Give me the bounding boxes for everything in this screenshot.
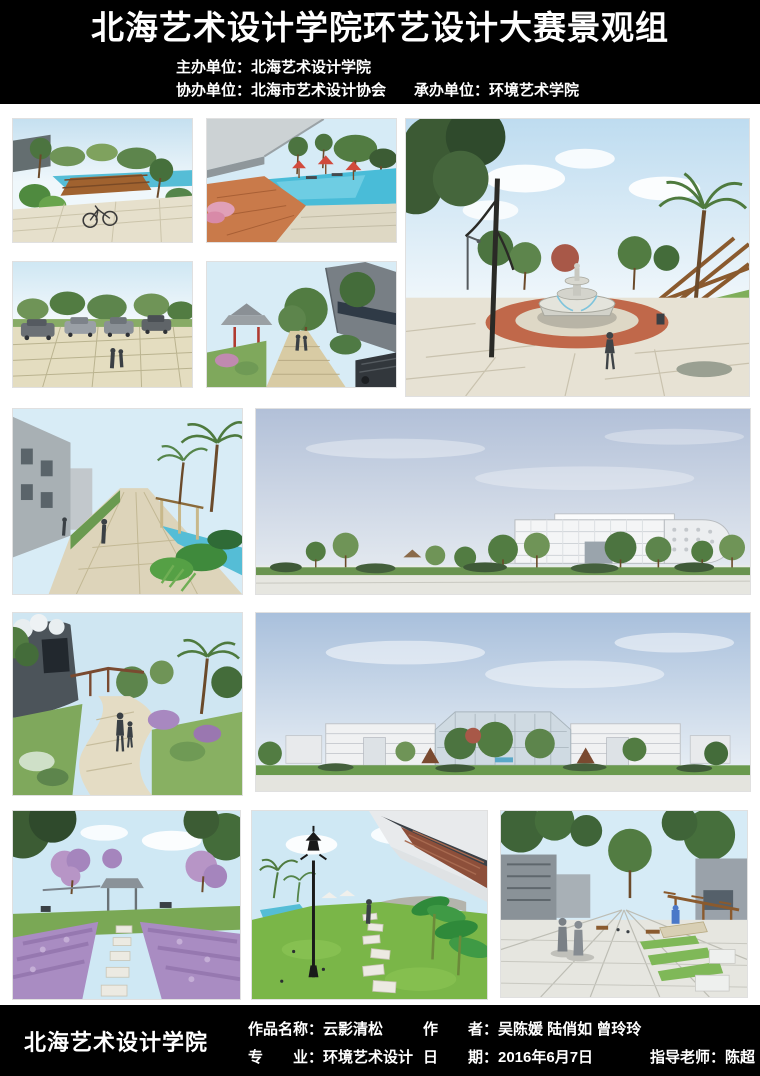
co-organizer-unit: 协办单位：北海市艺术设计协会 [176, 82, 386, 99]
school-name: 北海艺术设计学院 [24, 1025, 208, 1057]
building-elevation-art [256, 409, 750, 594]
organizer-line-host: 主办单位：北海艺术设计学院 [176, 56, 579, 79]
render-palm-walkway-image [12, 408, 243, 595]
date-field: 日 期：2016年6月7日 [423, 1046, 593, 1067]
pavilion-path-art [207, 262, 396, 387]
render-lawn-lamp-image [251, 810, 488, 1000]
wisteria-garden-art [13, 811, 240, 999]
render-pavilion-path-image [206, 261, 397, 388]
render-pool-bridge-image [12, 118, 193, 243]
advisor-field: 指导老师：陈超 [650, 1046, 755, 1067]
undertaker-unit: 承办单位：环境艺术学院 [414, 82, 579, 99]
palm-walkway-art [13, 409, 242, 594]
organizer-block: 主办单位：北海艺术设计学院 协办单位：北海市艺术设计协会承办单位：环境艺术学院 [176, 56, 579, 102]
render-fountain-plaza-image [405, 118, 750, 397]
pool-bridge-art [13, 119, 192, 242]
poster-footer: 北海艺术设计学院 作品名称：云影清松 专 业：环境艺术设计 作 者：吴陈媛 陆俏… [0, 1005, 760, 1076]
poster-header: 北海艺术设计学院环艺设计大赛景观组 主办单位：北海艺术设计学院 协办单位：北海市… [0, 0, 760, 104]
render-parking-lot-image [12, 261, 193, 388]
render-promenade-image [500, 810, 748, 998]
umbrella-pool-art [207, 119, 396, 242]
garden-path-art [13, 613, 242, 795]
render-campus-panorama-image [255, 612, 751, 792]
authors-field: 作 者：吴陈媛 陆俏如 曾玲玲 [423, 1018, 641, 1039]
poster-title: 北海艺术设计学院环艺设计大赛景观组 [0, 7, 760, 49]
host-unit: 主办单位：北海艺术设计学院 [176, 59, 371, 76]
fountain-plaza-art [406, 119, 749, 396]
promenade-art [501, 811, 747, 997]
campus-panorama-art [256, 613, 750, 791]
render-building-elevation-image [255, 408, 751, 595]
parking-lot-art [13, 262, 192, 387]
render-garden-path-image [12, 612, 243, 796]
work-title-field: 作品名称：云影清松 [248, 1018, 383, 1039]
organizer-line-co: 协办单位：北海市艺术设计协会承办单位：环境艺术学院 [176, 79, 579, 102]
poster: 北海艺术设计学院环艺设计大赛景观组 主办单位：北海艺术设计学院 协办单位：北海市… [0, 0, 760, 1076]
render-wisteria-garden-image [12, 810, 241, 1000]
lawn-lamp-art [252, 811, 487, 999]
render-umbrella-pool-image [206, 118, 397, 243]
major-field: 专 业：环境艺术设计 [248, 1046, 413, 1067]
